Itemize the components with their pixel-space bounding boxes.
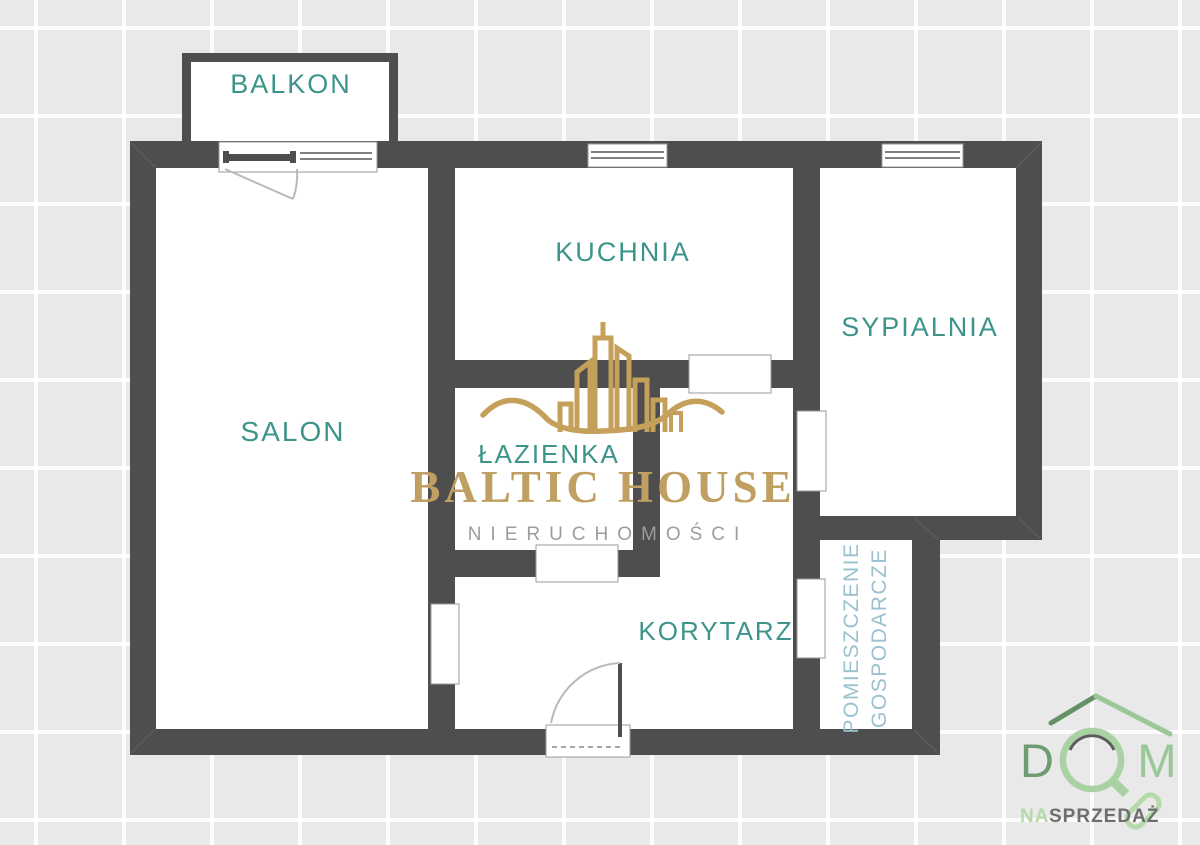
wall-bottom — [130, 729, 940, 755]
entrance-opening — [546, 725, 630, 757]
watermark-brand-subtitle: NIERUCHOMOŚCI — [468, 523, 749, 545]
room-label-sypialnia: SYPIALNIA — [841, 312, 999, 342]
room-label-balkon: BALKON — [230, 69, 352, 99]
floor-plan-page: BALKON SALON KUCHNIA SYPIALNIA ŁAZIENKA … — [0, 0, 1200, 845]
balcony-wall-top — [182, 53, 398, 62]
room-label-korytarz: KORYTARZ — [638, 616, 793, 646]
bathroom-door — [536, 545, 618, 582]
balcony-wall-left — [182, 53, 191, 142]
salon-door — [431, 604, 459, 684]
kitchen-passage — [689, 355, 771, 393]
logo-letter-m: M — [1137, 734, 1176, 787]
balcony-door-jamb-right — [290, 151, 296, 163]
room-label-pomieszczenie-line1: POMIESZCZENIE — [840, 542, 863, 733]
corner-logo-dom-na-sprzedaz: D M NA SPRZEDAŻ — [1020, 696, 1177, 830]
logo-tagline-word: SPRZEDAŻ — [1049, 806, 1159, 827]
wall-right-upper — [1016, 141, 1042, 540]
balcony-door-leaf-bar — [228, 154, 290, 161]
wall-left — [130, 141, 156, 755]
room-label-kuchnia: KUCHNIA — [555, 237, 691, 267]
watermark-brand-name: BALTIC HOUSE — [410, 462, 795, 512]
magnifier-neck — [1113, 781, 1126, 794]
wall-right-lower — [912, 516, 940, 755]
roof-icon-right — [1096, 696, 1170, 734]
balcony-wall-right — [389, 53, 398, 142]
room-label-pomieszczenie-line2: GOSPODARCZE — [868, 548, 891, 728]
logo-letter-d: D — [1020, 734, 1054, 787]
room-label-salon: SALON — [241, 416, 346, 447]
bedroom-door — [797, 411, 826, 491]
balcony-door-jamb-left — [223, 151, 229, 163]
magnifier-lens — [1063, 731, 1121, 789]
logo-tagline-prefix: NA — [1020, 806, 1049, 827]
utility-door — [797, 579, 825, 658]
bedroom-window — [882, 144, 963, 167]
kitchen-window — [588, 144, 667, 167]
roof-icon-left — [1051, 696, 1096, 723]
floor-plan-canvas: BALKON SALON KUCHNIA SYPIALNIA ŁAZIENKA … — [0, 0, 1200, 845]
